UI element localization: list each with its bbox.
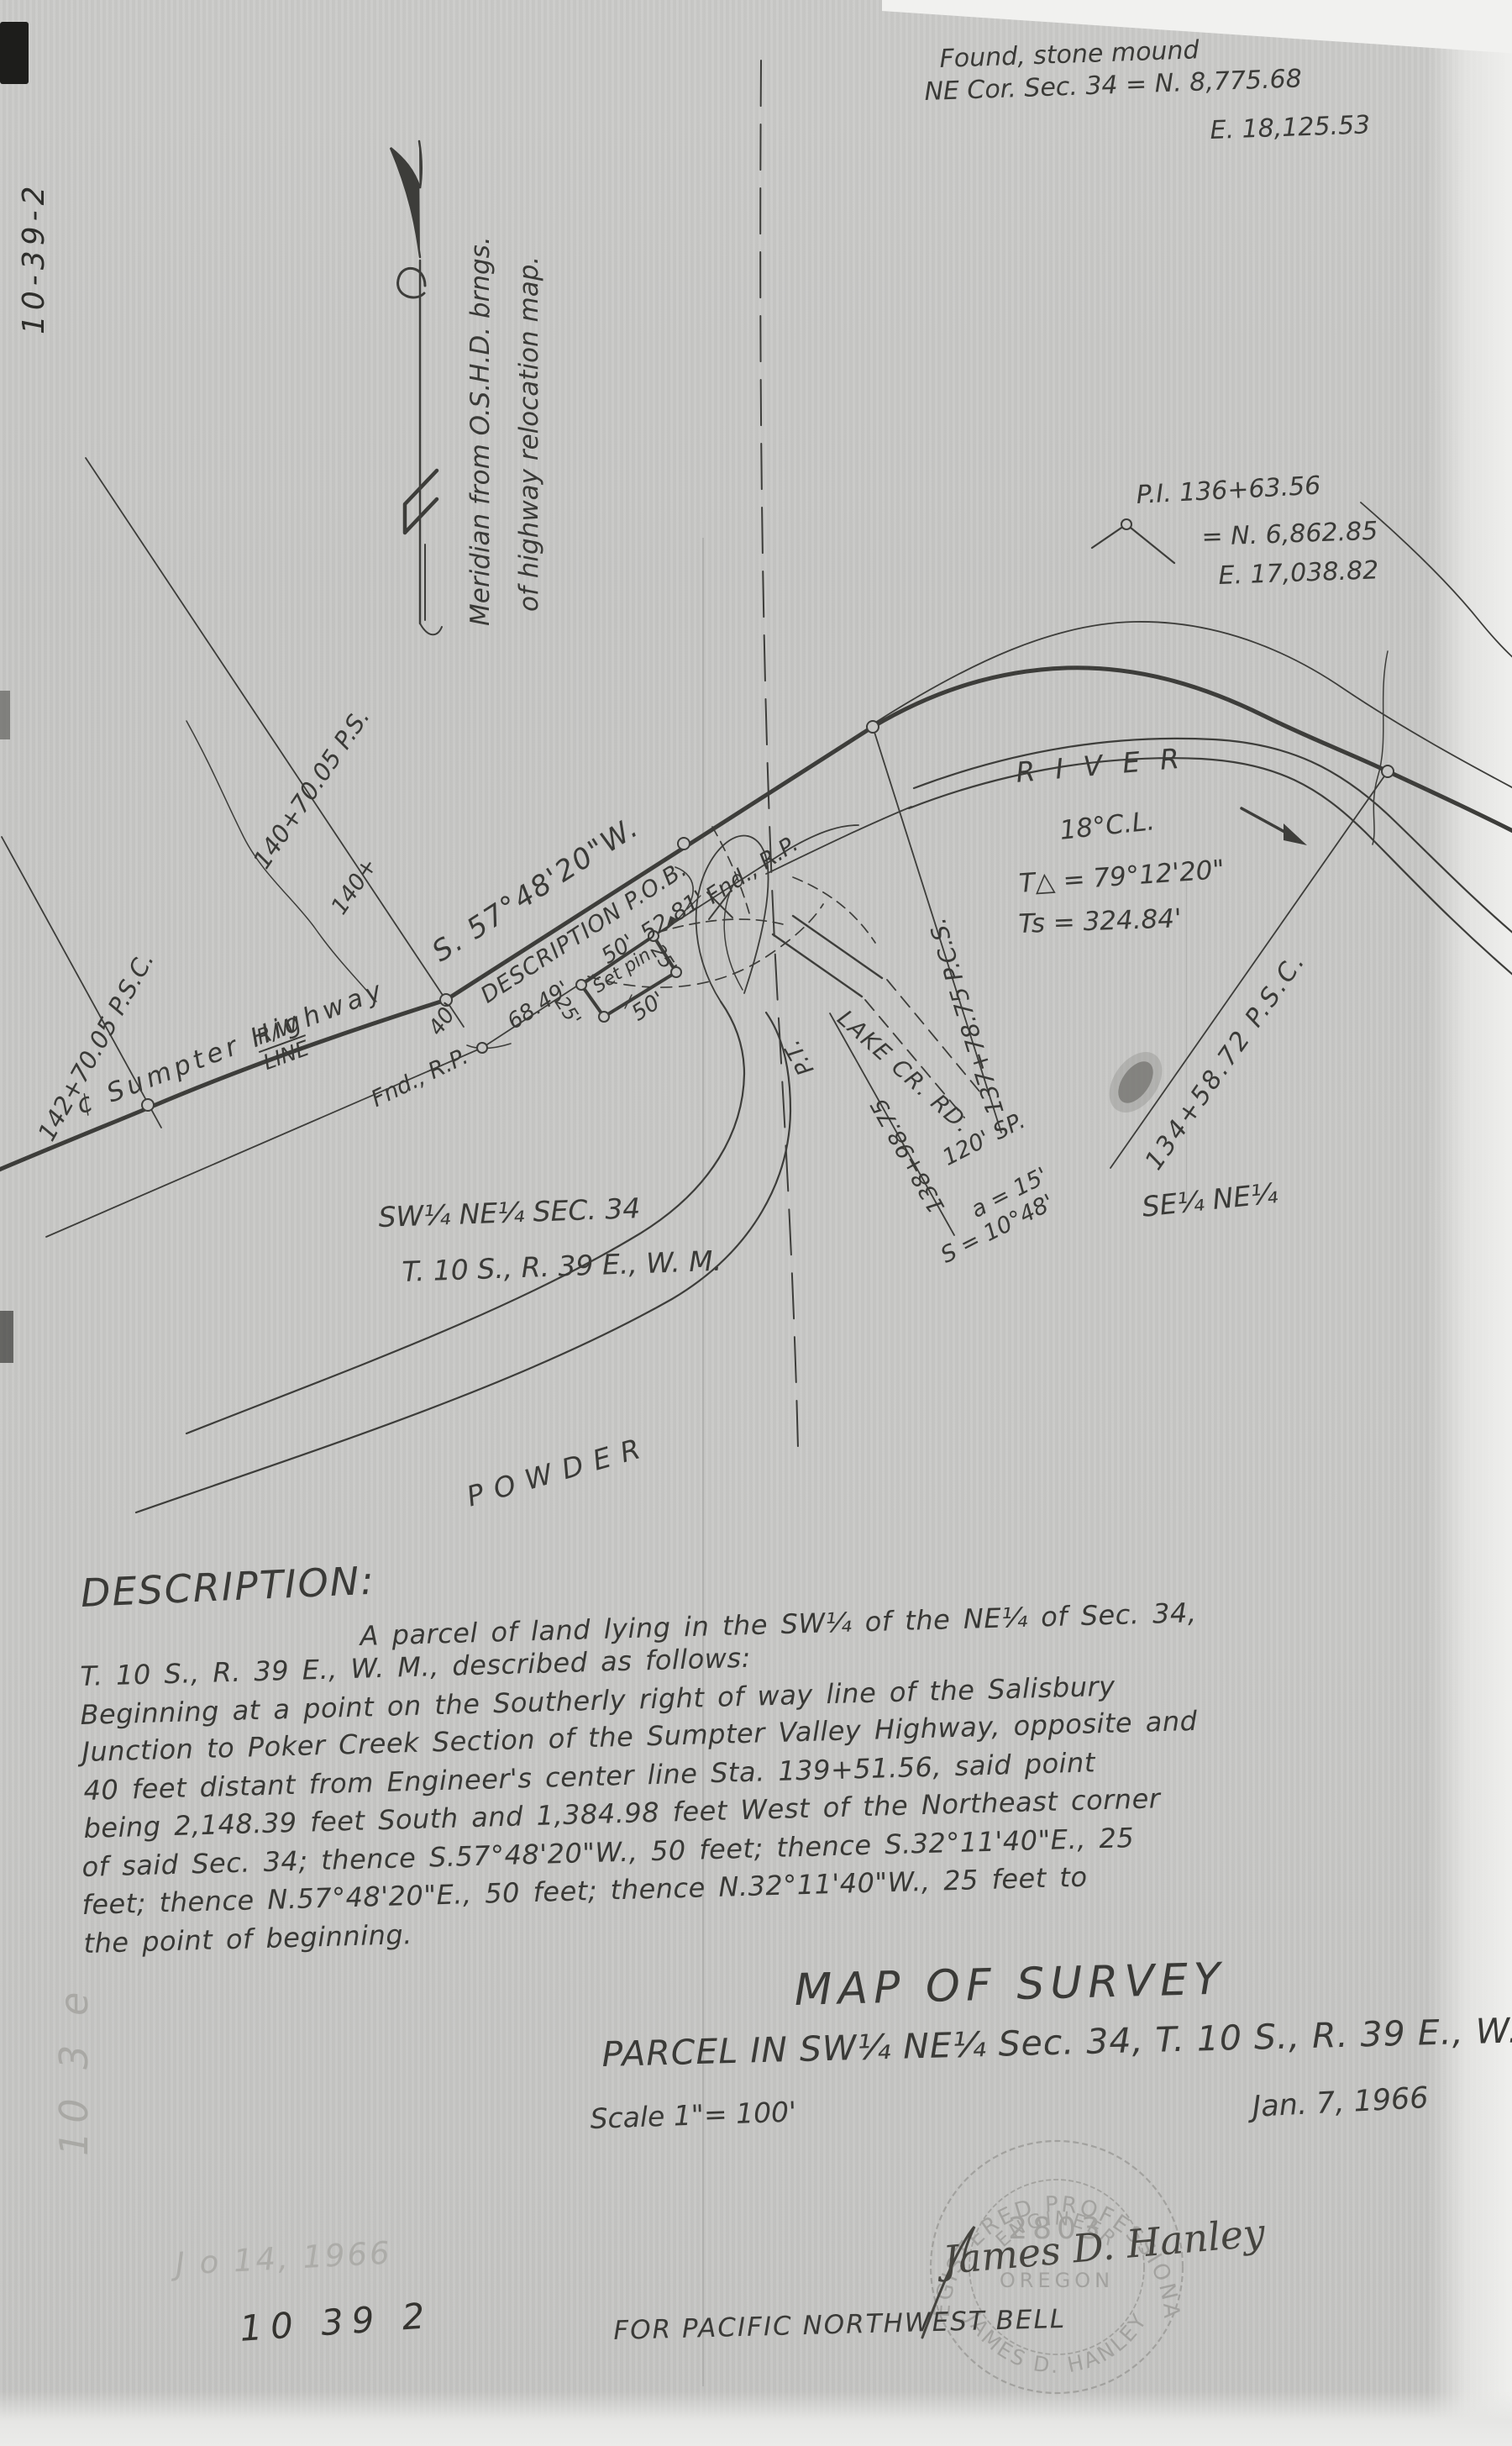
station-point: [678, 838, 690, 850]
monument-point: [477, 1043, 487, 1053]
map-title: MAP OF SURVEY: [794, 1957, 1226, 2014]
section-line: [760, 60, 798, 1449]
pi-angle-glyph: [1092, 524, 1174, 563]
station-point: [867, 721, 879, 733]
creek-line: [1373, 651, 1388, 844]
map-linework: REGISTERED PROFESSIONAL ENGINEER 2803 OR…: [0, 0, 1512, 2446]
survey-map-sheet: REGISTERED PROFESSIONAL ENGINEER 2803 OR…: [0, 0, 1512, 2446]
pi-point: [1121, 519, 1131, 529]
flow-arrowhead: [1284, 823, 1307, 845]
ink-smudge: [1099, 1042, 1173, 1122]
parcel-corner: [576, 980, 586, 990]
found-note-line3: E. 18,125.53: [1210, 112, 1371, 144]
highway-centerline: [0, 668, 1512, 1175]
creek-line: [186, 721, 376, 1002]
meridian-note-line2: of highway relocation map.: [516, 256, 543, 612]
meridian-note-line1: Meridian from O.S.H.D. brngs.: [467, 236, 495, 626]
river-bank: [914, 739, 1512, 943]
parcel-corner: [599, 1012, 609, 1022]
tie-dashed: [793, 877, 875, 943]
pi-note-line2: = N. 6,862.85: [1201, 518, 1378, 551]
north-arrow-icon: [391, 141, 422, 257]
pi-note-line3: E. 17,038.82: [1218, 557, 1379, 589]
margin-pencil-note: 10 3 e: [54, 1984, 94, 2156]
station-point: [1382, 765, 1394, 777]
station-point: [142, 1099, 154, 1111]
scale-note: Scale 1"= 100': [590, 2097, 797, 2133]
corner-file-number: 10-39-2: [18, 181, 50, 334]
label-ts: Ts = 324.84': [1018, 905, 1182, 938]
bridge: [773, 916, 882, 997]
corner-curve: [1361, 502, 1512, 668]
radial-140: [86, 458, 464, 1027]
north-arrow-icon: [420, 544, 442, 634]
